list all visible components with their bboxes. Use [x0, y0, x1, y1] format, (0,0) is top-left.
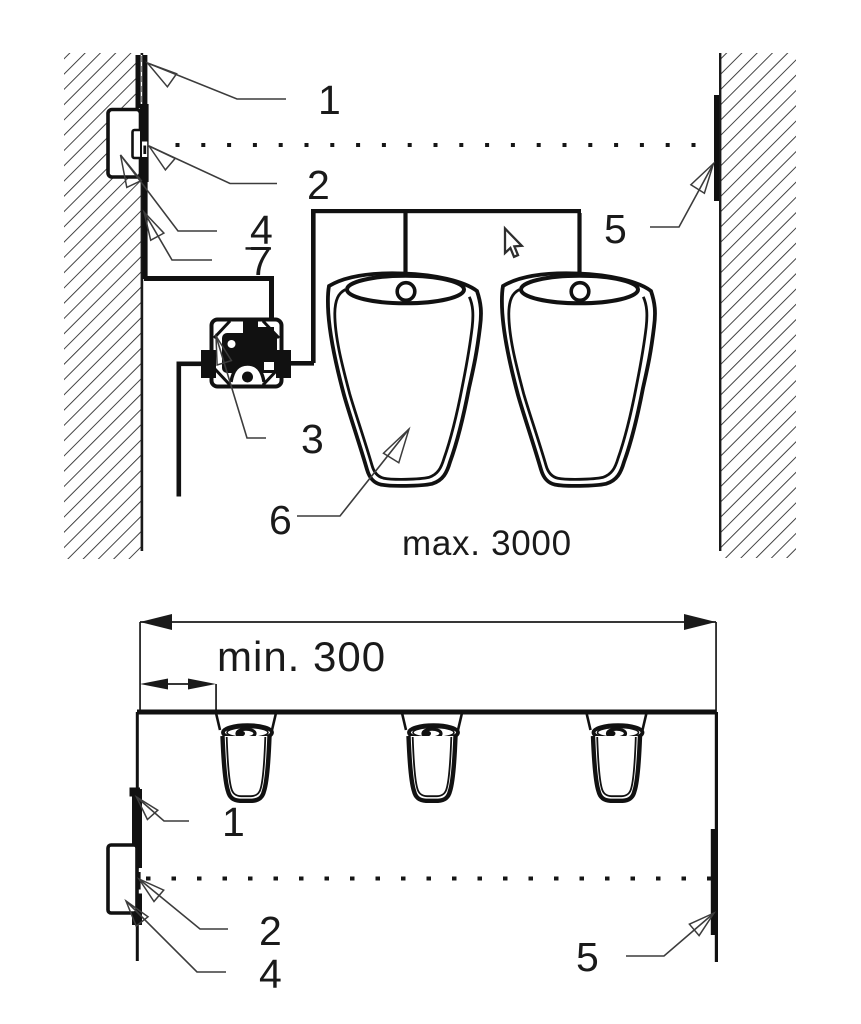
svg-text:5: 5 [604, 206, 627, 252]
svg-text:max. 3000: max. 3000 [402, 524, 572, 563]
svg-text:1: 1 [318, 77, 341, 123]
svg-text:min. 300: min. 300 [217, 633, 386, 680]
svg-text:7: 7 [249, 238, 272, 284]
svg-text:2: 2 [307, 162, 330, 208]
svg-text:2: 2 [259, 908, 282, 954]
svg-text:4: 4 [259, 951, 282, 997]
svg-text:5: 5 [576, 934, 599, 980]
svg-text:6: 6 [269, 497, 292, 543]
svg-text:1: 1 [222, 799, 245, 845]
svg-text:3: 3 [301, 416, 324, 462]
